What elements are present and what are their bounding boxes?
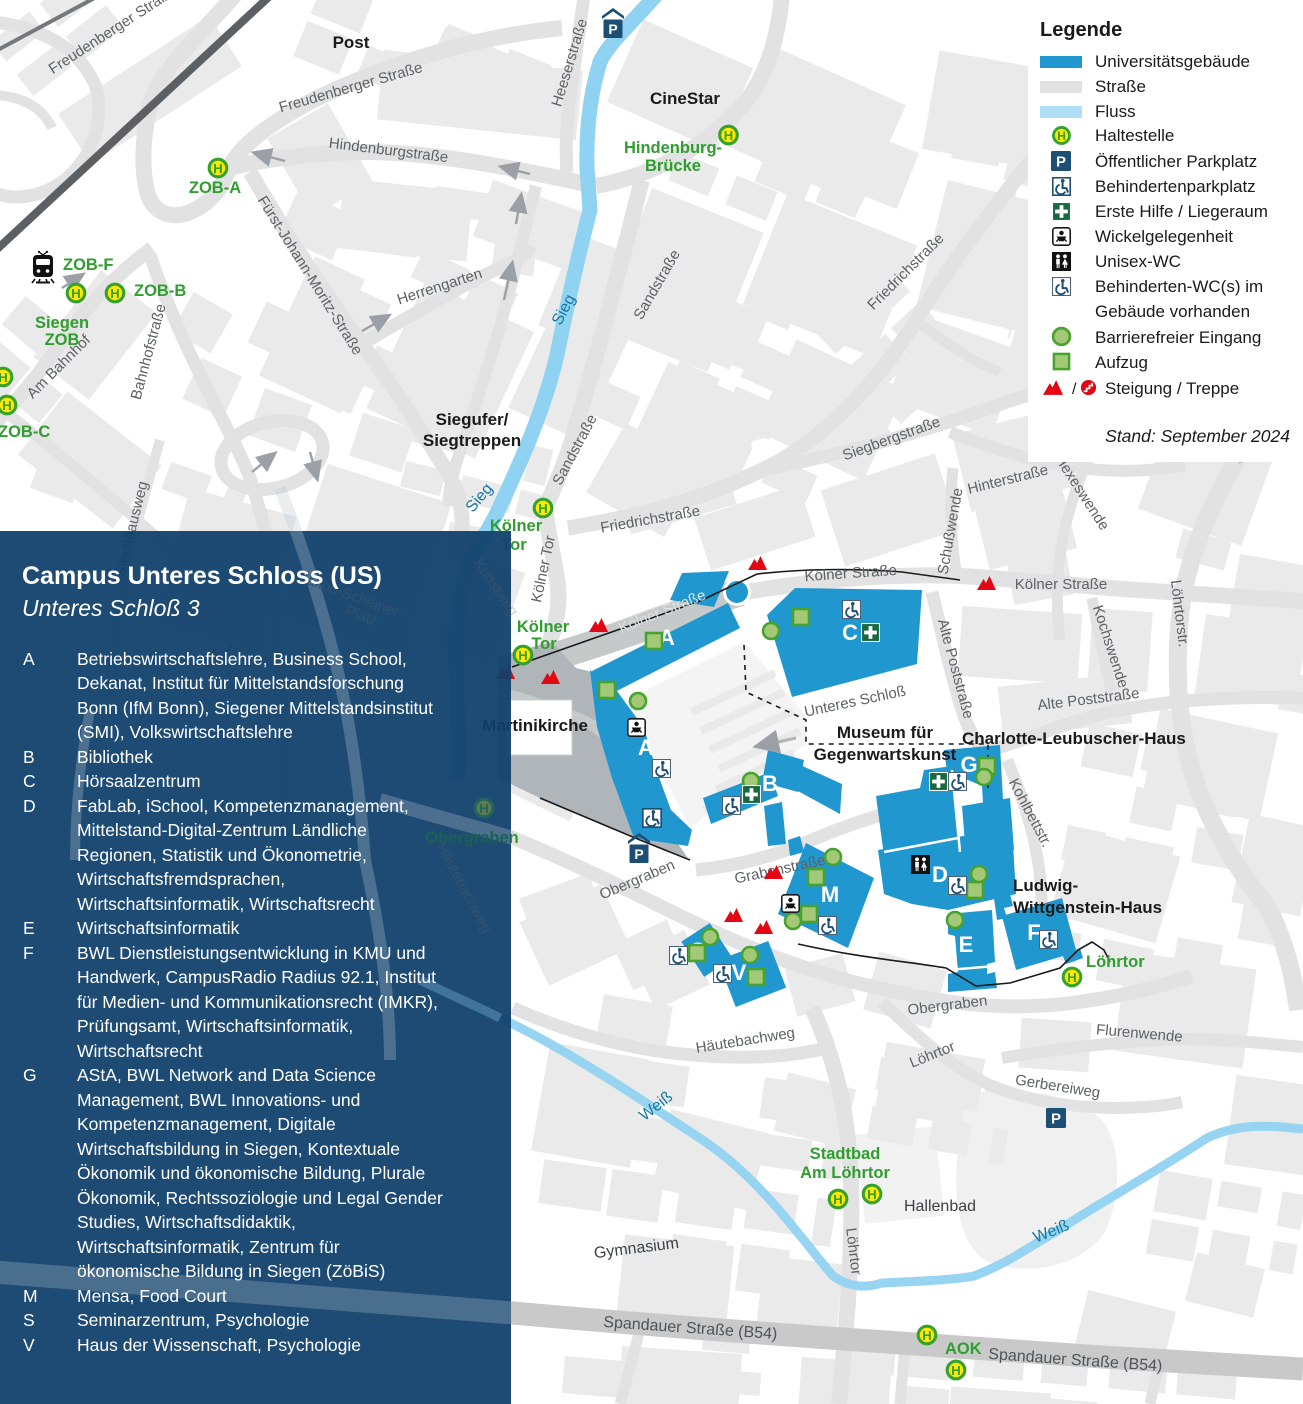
svg-text:Handwerk, CampusRadio Radius 9: Handwerk, CampusRadio Radius 92.1, Insti… bbox=[77, 967, 436, 987]
svg-text:C: C bbox=[842, 620, 858, 645]
svg-text:ZOB-F: ZOB-F bbox=[63, 256, 113, 274]
svg-text:Unisex-WC: Unisex-WC bbox=[1095, 252, 1181, 271]
svg-text:D: D bbox=[23, 796, 36, 816]
svg-text:D: D bbox=[932, 862, 948, 887]
svg-text:BWL Dienstleistungsentwicklung: BWL Dienstleistungsentwicklung in KMU un… bbox=[77, 943, 426, 963]
svg-text:Bibliothek: Bibliothek bbox=[77, 747, 153, 767]
svg-text:CineStar: CineStar bbox=[650, 89, 720, 108]
svg-text:Post: Post bbox=[333, 33, 370, 52]
svg-text:Betriebswirtschaftslehre, Busi: Betriebswirtschaftslehre, Business Schoo… bbox=[77, 649, 407, 669]
svg-text:Öffentlicher Parkplatz: Öffentlicher Parkplatz bbox=[1095, 152, 1257, 171]
svg-text:Am Löhrtor: Am Löhrtor bbox=[800, 1164, 890, 1182]
svg-text:Wickelgelegenheit: Wickelgelegenheit bbox=[1095, 227, 1233, 246]
svg-text:G: G bbox=[23, 1065, 37, 1085]
svg-text:Stadtbad: Stadtbad bbox=[810, 1145, 881, 1163]
svg-text:Management, BWL Innovations- u: Management, BWL Innovations- und bbox=[77, 1090, 360, 1110]
svg-text:ZOB: ZOB bbox=[45, 331, 80, 349]
svg-text:ZOB-B: ZOB-B bbox=[134, 282, 186, 300]
svg-text:Steigung / Treppe: Steigung / Treppe bbox=[1105, 379, 1239, 398]
svg-text:Behindertenparkplatz: Behindertenparkplatz bbox=[1095, 177, 1256, 196]
svg-text:Behinderten-WC(s) im: Behinderten-WC(s) im bbox=[1095, 277, 1263, 296]
svg-text:B: B bbox=[762, 771, 778, 796]
svg-text:A: A bbox=[23, 649, 35, 669]
svg-text:M: M bbox=[23, 1286, 38, 1306]
svg-text:Charlotte-Leubuscher-Haus: Charlotte-Leubuscher-Haus bbox=[962, 729, 1186, 748]
svg-text:B: B bbox=[23, 747, 35, 767]
svg-text:Fluss: Fluss bbox=[1095, 102, 1136, 121]
svg-text:ZOB-C: ZOB-C bbox=[0, 423, 50, 441]
svg-text:Wirtschaftsinformatik, Zentrum: Wirtschaftsinformatik, Zentrum für bbox=[77, 1237, 340, 1257]
svg-text:Unteres Schloß 3: Unteres Schloß 3 bbox=[22, 595, 200, 621]
svg-text:FabLab, iSchool, Kompetenzman: FabLab, iSchool, Kompetenzmanagement, bbox=[77, 796, 409, 816]
svg-text:/: / bbox=[1072, 381, 1077, 398]
svg-text:E: E bbox=[23, 918, 35, 938]
svg-text:Barrierefreier Eingang: Barrierefreier Eingang bbox=[1095, 328, 1261, 347]
svg-text:Studies, Wirtschaftsdidaktik,: Studies, Wirtschaftsdidaktik, bbox=[77, 1212, 296, 1232]
svg-text:Aufzug: Aufzug bbox=[1095, 353, 1148, 372]
svg-text:Hallenbad: Hallenbad bbox=[904, 1198, 976, 1215]
svg-text:Gebäude vorhanden: Gebäude vorhanden bbox=[1095, 302, 1250, 321]
svg-text:Wirtschaftsfremdsprachen,: Wirtschaftsfremdsprachen, bbox=[77, 869, 285, 889]
svg-text:Wirtschaftsinformatik: Wirtschaftsinformatik bbox=[77, 918, 240, 938]
svg-text:Universitätsgebäude: Universitätsgebäude bbox=[1095, 52, 1250, 71]
svg-text:S: S bbox=[23, 1310, 35, 1330]
svg-text:Kölner: Kölner bbox=[517, 618, 570, 636]
svg-text:Prüfungsamt, Wirtschaftsinform: Prüfungsamt, Wirtschaftsinformatik, bbox=[77, 1016, 353, 1036]
svg-text:Hörsaalzentrum: Hörsaalzentrum bbox=[77, 771, 201, 791]
svg-text:Wirtschaftsrecht: Wirtschaftsrecht bbox=[77, 1041, 203, 1061]
svg-text:Wirtschaftsbildung in Siegen,: Wirtschaftsbildung in Siegen, Kontextual… bbox=[77, 1139, 400, 1159]
svg-text:E: E bbox=[959, 932, 974, 957]
svg-text:Wirtschaftsinformatik, Wirtsch: Wirtschaftsinformatik, Wirtschaftsrecht bbox=[77, 894, 375, 914]
svg-text:Wittgenstein-Haus: Wittgenstein-Haus bbox=[1013, 898, 1162, 917]
svg-text:V: V bbox=[23, 1335, 35, 1355]
svg-text:Siegen: Siegen bbox=[35, 314, 89, 332]
svg-text:Ludwig-: Ludwig- bbox=[1013, 876, 1078, 895]
svg-text:Legende: Legende bbox=[1040, 19, 1122, 41]
svg-text:Straße: Straße bbox=[1095, 77, 1146, 96]
svg-text:AOK: AOK bbox=[945, 1340, 982, 1358]
svg-text:für Medien- und Kommunikations: für Medien- und Kommunikationsrecht (IMK… bbox=[77, 992, 438, 1012]
svg-text:Seminarzentrum, Psychologie: Seminarzentrum, Psychologie bbox=[77, 1310, 309, 1330]
svg-text:ZOB-A: ZOB-A bbox=[189, 179, 241, 197]
svg-text:AStA, BWL Network and Data Sci: AStA, BWL Network and Data Science bbox=[77, 1065, 376, 1085]
svg-text:Kompetenzmanagement, Digitale: Kompetenzmanagement, Digitale bbox=[77, 1114, 336, 1134]
svg-text:Haus der Wissenschaft, Psychol: Haus der Wissenschaft, Psychologie bbox=[77, 1335, 361, 1355]
svg-text:F: F bbox=[1027, 920, 1040, 945]
svg-text:Haltestelle: Haltestelle bbox=[1095, 126, 1174, 145]
svg-text:Ökonomik und ökonomische Bildu: Ökonomik und ökonomische Bildung, Plural… bbox=[77, 1163, 425, 1183]
svg-text:A: A bbox=[638, 735, 654, 760]
svg-text:Löhrtor: Löhrtor bbox=[1086, 953, 1145, 971]
svg-text:Siegufer/: Siegufer/ bbox=[436, 410, 509, 429]
svg-text:Ökonomik, Rechtssoziologie und: Ökonomik, Rechtssoziologie und Legal Gen… bbox=[77, 1188, 443, 1208]
svg-text:Dekanat, Institut für Mittelst: Dekanat, Institut für Mittelstandsforsch… bbox=[77, 673, 404, 693]
svg-text:Siegtreppen: Siegtreppen bbox=[423, 431, 521, 450]
svg-text:(SMI), Volkswirtschaftslehre: (SMI), Volkswirtschaftslehre bbox=[77, 722, 293, 742]
svg-text:V: V bbox=[732, 960, 747, 985]
svg-text:Museum für: Museum für bbox=[837, 723, 934, 742]
svg-text:Gegenwartskunst: Gegenwartskunst bbox=[814, 745, 957, 764]
svg-text:Mensa, Food Court: Mensa, Food Court bbox=[77, 1286, 227, 1306]
svg-text:ökonomische Bildung in Siegen: ökonomische Bildung in Siegen (ZöBiS) bbox=[77, 1261, 385, 1281]
svg-text:F: F bbox=[23, 943, 34, 963]
svg-text:Bonn (IfM Bonn), Siegener Mitt: Bonn (IfM Bonn), Siegener Mittelstandsin… bbox=[77, 698, 433, 718]
svg-text:C: C bbox=[23, 771, 36, 791]
svg-text:Stand: September 2024: Stand: September 2024 bbox=[1105, 426, 1290, 446]
svg-text:Mittelstand-Digital-Zentrum Lä: Mittelstand-Digital-Zentrum Ländliche bbox=[77, 820, 367, 840]
svg-text:Hindenburg-: Hindenburg- bbox=[624, 139, 722, 157]
svg-text:Kölner Straße: Kölner Straße bbox=[1015, 576, 1108, 593]
svg-text:Erste Hilfe / Liegeraum: Erste Hilfe / Liegeraum bbox=[1095, 202, 1268, 221]
svg-text:Brücke: Brücke bbox=[645, 157, 701, 175]
svg-text:Campus Unteres Schloss (US): Campus Unteres Schloss (US) bbox=[22, 562, 382, 590]
svg-text:Regionen, Statistik und Ökonom: Regionen, Statistik und Ökonometrie, bbox=[77, 845, 367, 865]
svg-text:Tor: Tor bbox=[531, 635, 557, 653]
